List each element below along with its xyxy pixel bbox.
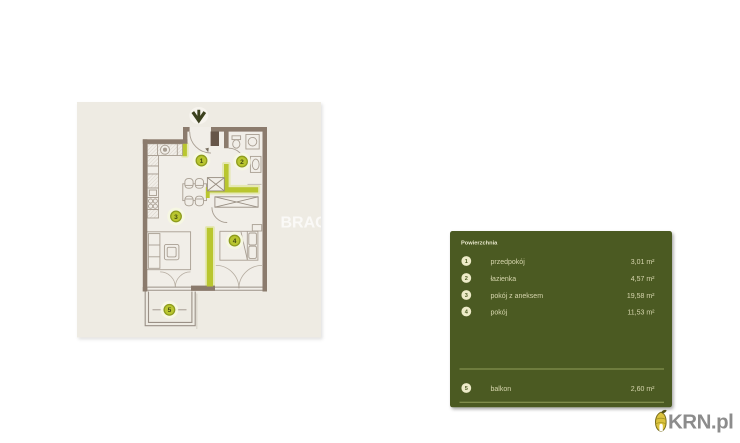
svg-text:3: 3 [465,293,468,299]
svg-text:2,60 m²: 2,60 m² [631,386,655,393]
svg-text:11,53 m²: 11,53 m² [627,310,655,317]
svg-text:5: 5 [168,307,172,314]
svg-text:1: 1 [465,259,468,265]
svg-text:pokój z aneksem: pokój z aneksem [491,293,544,300]
svg-text:balkon: balkon [491,386,512,393]
svg-text:pokój: pokój [491,310,508,317]
svg-text:2: 2 [240,159,244,166]
svg-text:3: 3 [174,214,178,221]
svg-text:łazienka: łazienka [491,276,517,283]
svg-text:KRN.pl: KRN.pl [668,411,733,434]
svg-text:4,57 m²: 4,57 m² [631,276,655,283]
svg-text:BRACI: BRACI [281,215,332,232]
svg-text:1: 1 [200,158,204,165]
svg-text:2: 2 [465,276,468,282]
svg-text:4: 4 [233,238,237,245]
svg-text:Powierzchnia: Powierzchnia [461,241,498,247]
svg-text:5: 5 [465,386,468,392]
svg-text:3,01 m²: 3,01 m² [631,259,655,266]
svg-text:19,58 m²: 19,58 m² [627,293,655,300]
svg-text:przedpokój: przedpokój [491,259,526,266]
